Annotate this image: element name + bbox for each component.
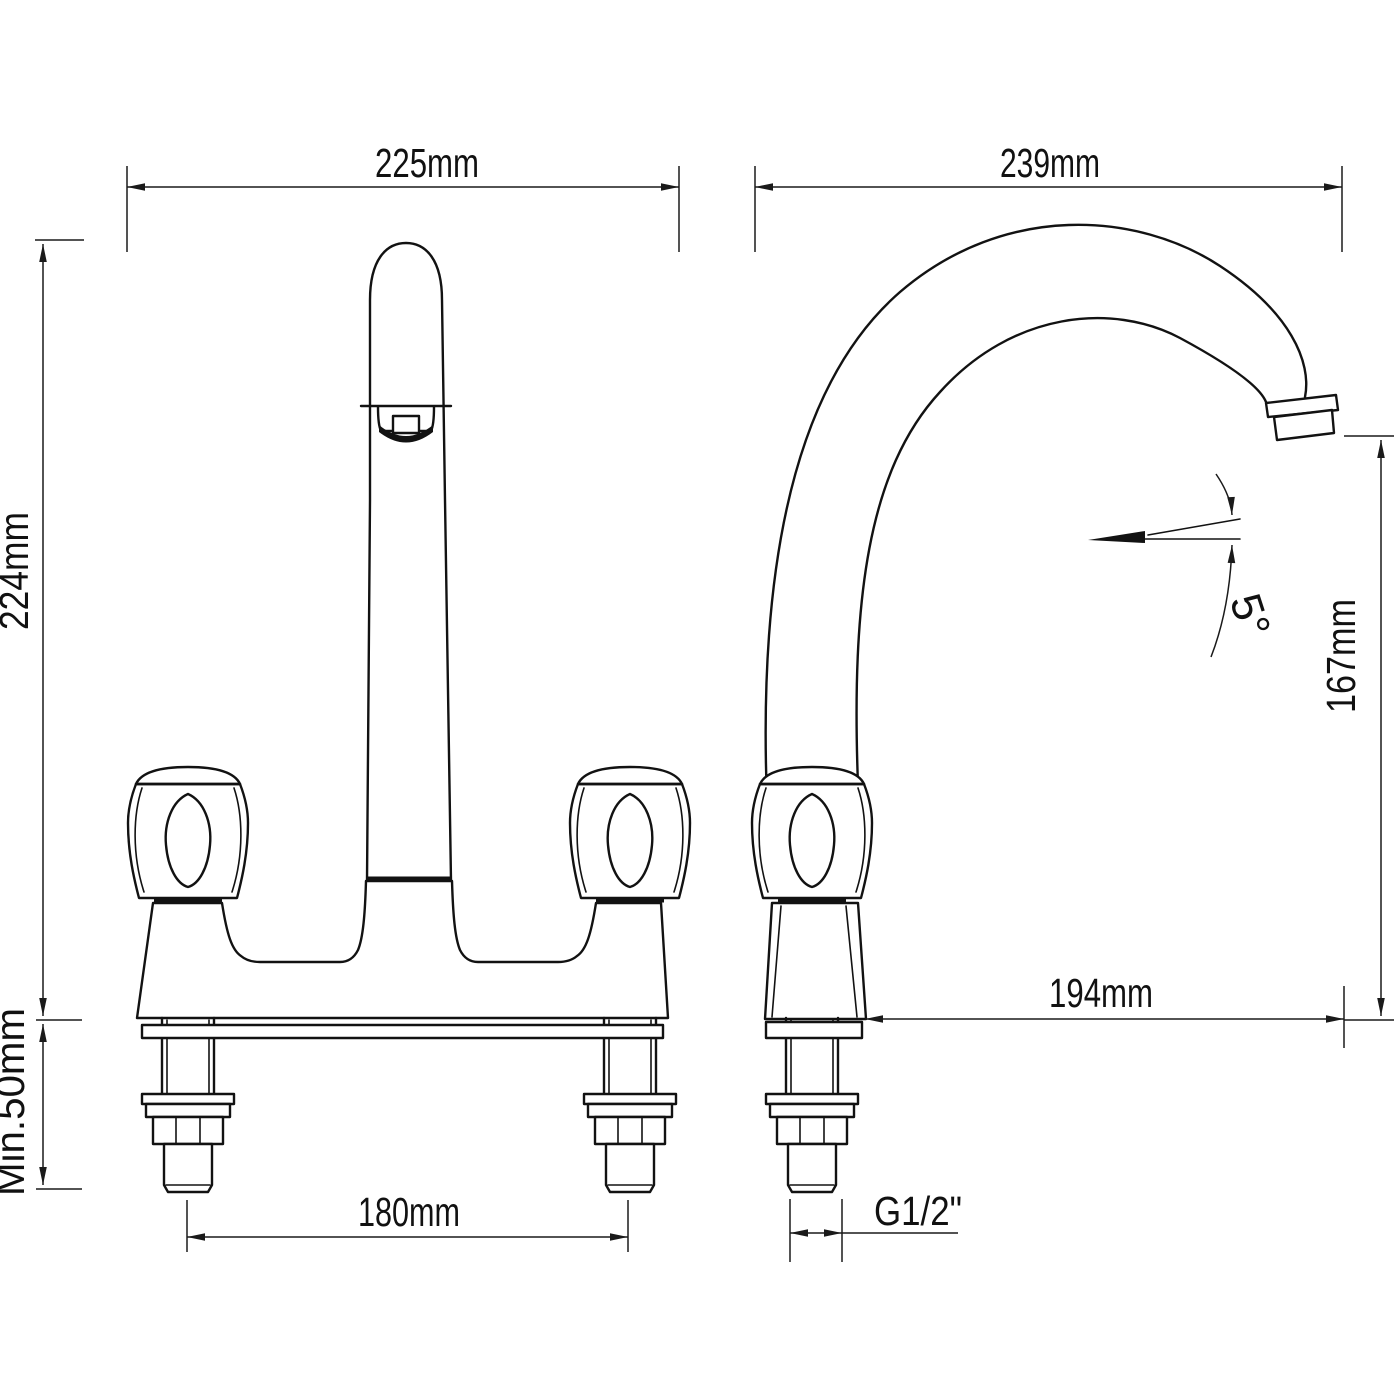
front-view xyxy=(128,243,690,1192)
dim-label-min-counter: Min.50mm xyxy=(0,1008,33,1196)
outlet-insert xyxy=(393,416,419,433)
dim-front-width: 225mm xyxy=(127,140,679,252)
dim-label-front-width: 225mm xyxy=(375,140,479,186)
dim-thread-size: G1/2" xyxy=(790,1188,962,1262)
dim-spout-reach: 194mm xyxy=(865,970,1344,1048)
side-spout-outer-curve xyxy=(766,225,1307,800)
side-escutcheon-plate xyxy=(766,1022,862,1038)
dim-inlet-spacing: 180mm xyxy=(187,1189,628,1252)
dim-label-outlet-height: 167mm xyxy=(1318,599,1364,713)
dim-min-counter-thickness: Min.50mm xyxy=(0,1008,82,1196)
side-view xyxy=(752,225,1338,1192)
dim-label-spout-reach: 194mm xyxy=(1049,970,1153,1016)
side-shank xyxy=(766,1018,858,1192)
front-left-handle xyxy=(128,767,248,900)
dim-label-inlet-spacing: 180mm xyxy=(358,1189,460,1235)
angle-arc-upper xyxy=(1216,474,1232,515)
technical-drawing-page: 225mm 239mm 224mm Min.50mm 180mm xyxy=(0,0,1400,1400)
angle-pointer-wedge xyxy=(1088,531,1145,543)
front-escutcheon-plate xyxy=(142,1025,663,1038)
side-handle xyxy=(752,767,872,900)
dim-total-height: 224mm xyxy=(0,240,84,1016)
front-spout-tube xyxy=(367,243,451,881)
dim-side-depth: 239mm xyxy=(755,140,1342,252)
dim-label-thread-size: G1/2" xyxy=(874,1188,962,1234)
front-left-shank xyxy=(142,1018,234,1192)
faucet-dimension-drawing: 225mm 239mm 224mm Min.50mm 180mm xyxy=(0,0,1400,1400)
angle-tilted-line xyxy=(1148,519,1240,535)
side-spout-inner-curve xyxy=(857,318,1266,785)
dim-spout-outlet-height: 167mm xyxy=(1318,436,1394,1020)
side-spout-nozzle xyxy=(1266,395,1338,440)
spout-angle-annotation xyxy=(1088,474,1240,657)
front-right-handle xyxy=(570,767,690,900)
dim-label-total-height: 224mm xyxy=(0,512,37,630)
front-right-shank xyxy=(584,1018,676,1192)
dim-label-side-depth: 239mm xyxy=(1000,140,1100,186)
dim-label-spout-angle: 5° xyxy=(1220,588,1280,643)
